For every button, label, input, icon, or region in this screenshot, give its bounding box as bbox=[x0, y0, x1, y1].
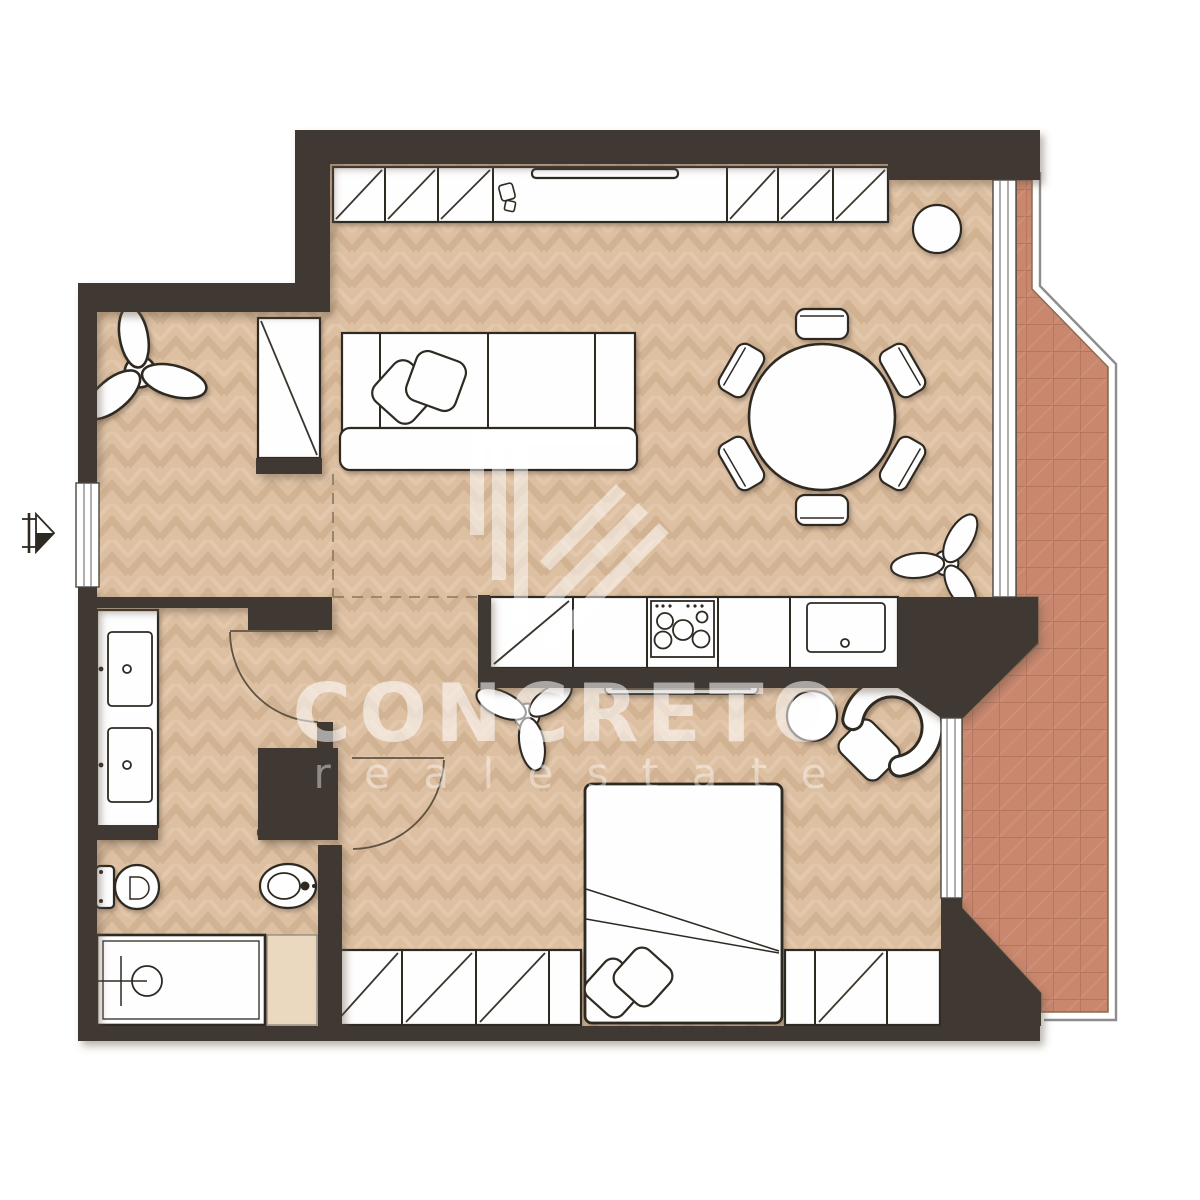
bath-tile-strip bbox=[267, 935, 317, 1025]
tv-console bbox=[532, 169, 678, 178]
stove bbox=[651, 601, 714, 657]
round-planter bbox=[913, 205, 961, 253]
bedroom-wardrobe-left bbox=[332, 950, 581, 1025]
floor-plan-page: CONCRETO r e a l e s t a t e bbox=[0, 0, 1200, 1200]
kitchen-sink bbox=[807, 603, 885, 652]
sofa bbox=[340, 333, 637, 470]
bed bbox=[580, 784, 782, 1023]
watermark-brand-text: CONCRETO bbox=[292, 667, 847, 760]
shower bbox=[97, 935, 265, 1025]
hall-wardrobe bbox=[258, 318, 320, 458]
vanity-sink bbox=[108, 728, 152, 802]
bedroom-terrace-window bbox=[941, 718, 962, 898]
living-terrace-window bbox=[993, 180, 1016, 597]
wardrobe-base bbox=[256, 458, 322, 474]
entry-window bbox=[76, 483, 99, 587]
floor-plan: CONCRETO r e a l e s t a t e bbox=[0, 0, 1200, 1200]
bedroom-wardrobe-right bbox=[785, 950, 940, 1025]
dining-table bbox=[749, 344, 895, 490]
watermark-tagline-text: r e a l e s t a t e bbox=[314, 749, 837, 798]
vanity bbox=[97, 610, 158, 827]
toilet bbox=[96, 865, 159, 909]
bidet bbox=[260, 864, 316, 908]
vanity-sink bbox=[108, 632, 152, 706]
living-wardrobe-row bbox=[333, 167, 888, 222]
